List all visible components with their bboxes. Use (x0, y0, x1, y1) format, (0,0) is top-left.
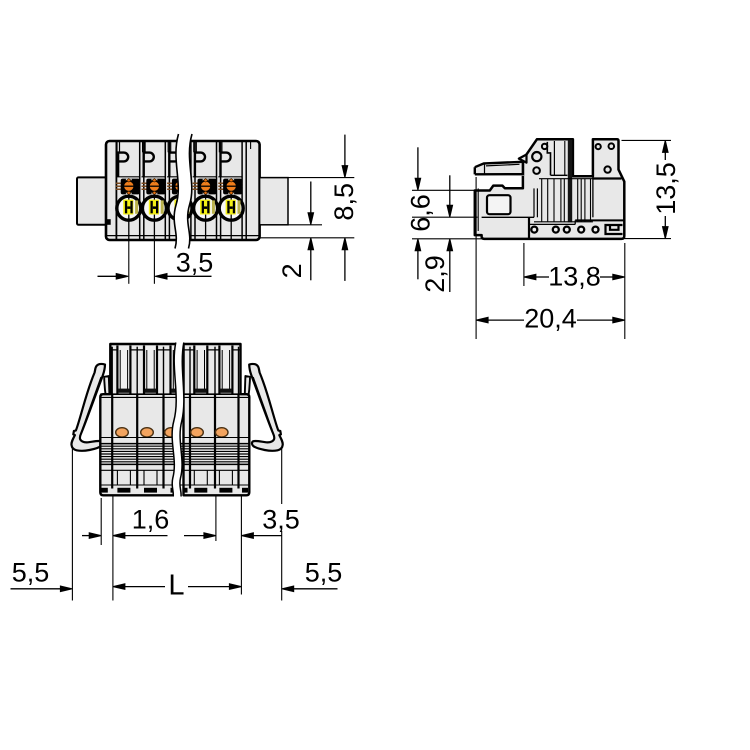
svg-text:8,5: 8,5 (329, 183, 359, 221)
svg-text:3,5: 3,5 (262, 505, 300, 535)
svg-text:3,5: 3,5 (176, 248, 214, 278)
svg-text:2: 2 (277, 263, 307, 278)
svg-text:13,8: 13,8 (548, 261, 601, 291)
svg-text:5,5: 5,5 (305, 558, 343, 588)
svg-text:L: L (168, 570, 184, 602)
svg-text:6,6: 6,6 (406, 194, 436, 232)
svg-text:2,9: 2,9 (420, 255, 450, 293)
svg-text:20,4: 20,4 (524, 304, 577, 334)
svg-text:5,5: 5,5 (12, 558, 50, 588)
svg-text:13,5: 13,5 (651, 162, 681, 215)
svg-text:1,6: 1,6 (132, 505, 170, 535)
